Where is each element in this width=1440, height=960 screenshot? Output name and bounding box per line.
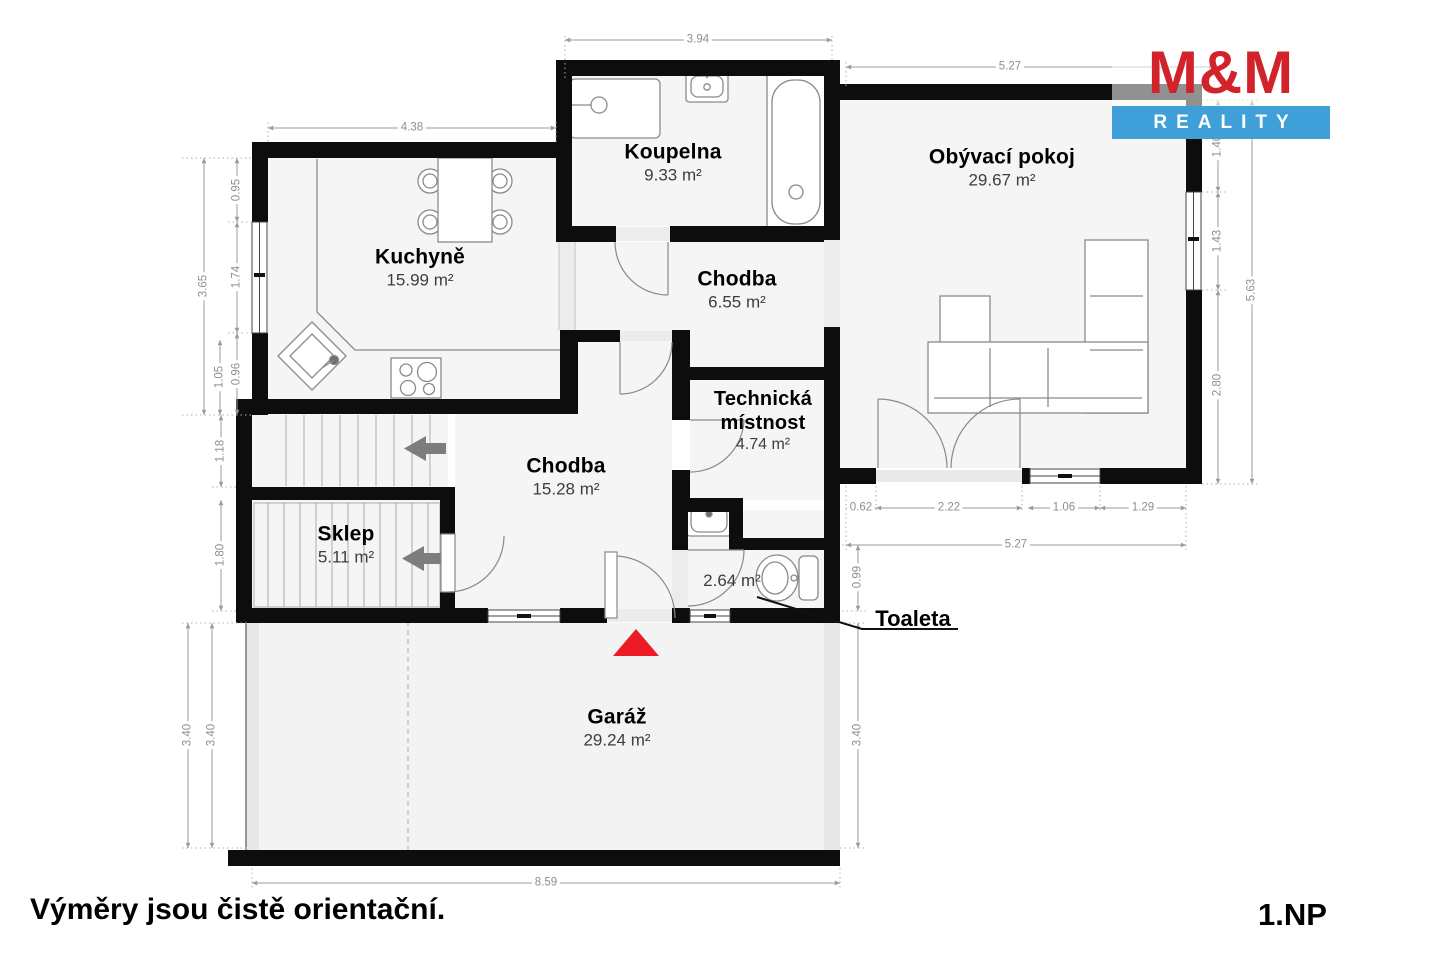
dim-label: 1.74: [231, 263, 244, 291]
dim-label: 4.38: [398, 122, 426, 135]
bathtub-icon: [767, 74, 825, 230]
room-label-sklep: Sklep 5.11 m²: [317, 522, 374, 567]
room-label-technicka-mistnost: Technická místnost 4.74 m²: [714, 388, 812, 454]
room-label-chodba-horni: Chodba 6.55 m²: [697, 267, 776, 312]
dim-label: 0.96: [231, 360, 244, 388]
dim-label: 2.22: [935, 502, 963, 515]
stove-icon: [391, 358, 441, 398]
dim-label: 1.43: [1212, 227, 1225, 255]
dim-label: 0.95: [231, 176, 244, 204]
dim-label: 5.63: [1246, 276, 1259, 304]
dim-label: 5.27: [1002, 539, 1030, 552]
dim-label: 5.27: [996, 61, 1024, 74]
dining-table-icon: [438, 158, 492, 242]
wc-toilet-icon: [756, 555, 818, 601]
shower-tray-icon: [570, 79, 660, 138]
room-label-toaleta: Toaleta: [875, 606, 950, 632]
kitchen-window-icon: [252, 222, 267, 333]
garage-window-right-icon: [690, 610, 730, 622]
dim-label: 1.80: [215, 541, 228, 569]
room-area-toaleta: 2.64 m²: [703, 571, 761, 591]
floor-label: 1.NP: [1258, 897, 1327, 933]
dim-label: 1.05: [214, 363, 227, 391]
room-floors: [246, 76, 1186, 850]
dim-label: 0.99: [852, 563, 865, 591]
room-label-garaz: Garáž 29.24 m²: [583, 705, 650, 750]
mm-reality-logo: M&M REALITY: [1112, 40, 1330, 139]
living-window-bottom-icon: [1030, 469, 1100, 483]
logo-reality-text: REALITY: [1144, 112, 1297, 134]
living-window-right-icon: [1186, 192, 1201, 290]
logo-mm-text: M&M: [1148, 43, 1294, 103]
dim-label: 1.06: [1050, 502, 1078, 515]
dim-label: 2.80: [1212, 371, 1225, 399]
dim-label: 3.40: [206, 721, 219, 749]
room-label-koupelna: Koupelna 9.33 m²: [624, 140, 721, 185]
dim-label: 1.29: [1129, 502, 1157, 515]
room-label-kuchyne: Kuchyně 15.99 m²: [375, 245, 465, 290]
logo-bottom: REALITY: [1112, 106, 1330, 139]
dim-label: 1.18: [215, 437, 228, 465]
room-label-chodba-dolni: Chodba 15.28 m²: [526, 454, 605, 499]
dim-label: 8.59: [532, 877, 560, 890]
dim-label: 3.40: [852, 721, 865, 749]
floorplan-page: Koupelna 9.33 m² Obývací pokoj 29.67 m² …: [0, 0, 1440, 960]
room-label-obyvaci-pokoj: Obývací pokoj 29.67 m²: [929, 145, 1075, 190]
dim-label: 0.62: [847, 502, 875, 515]
dim-label: 3.40: [182, 721, 195, 749]
disclaimer-text: Výměry jsou čistě orientační.: [30, 893, 445, 927]
dim-label: 3.94: [684, 34, 712, 47]
dim-label: 3.65: [198, 272, 211, 300]
logo-top: M&M: [1112, 40, 1330, 106]
garage-window-left-icon: [488, 610, 560, 622]
